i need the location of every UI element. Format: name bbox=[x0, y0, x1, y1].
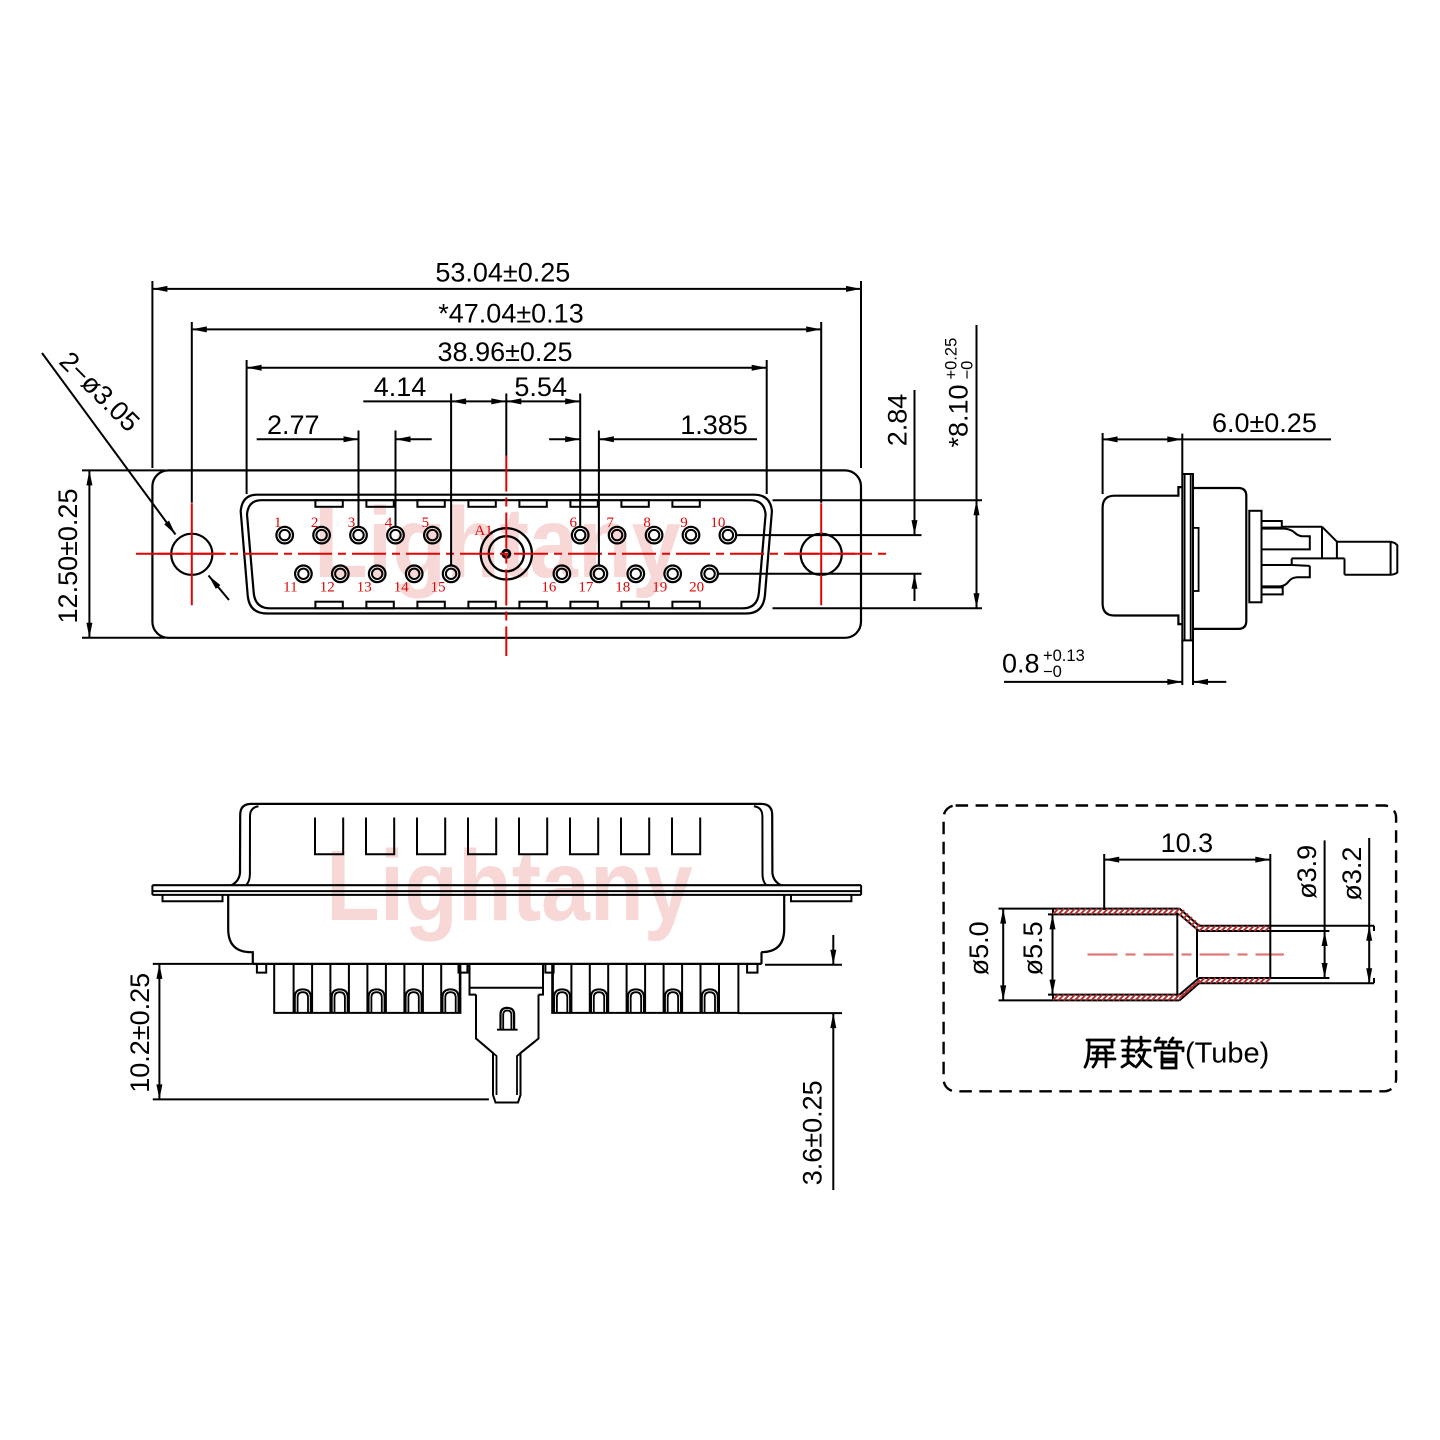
svg-text:9: 9 bbox=[680, 515, 688, 531]
svg-text:10.3: 10.3 bbox=[1161, 828, 1214, 858]
svg-text:3: 3 bbox=[348, 515, 356, 531]
svg-text:(Tube): (Tube) bbox=[1185, 1038, 1269, 1070]
svg-text:−0: −0 bbox=[1043, 663, 1062, 681]
svg-text:2.84: 2.84 bbox=[883, 394, 913, 447]
svg-text:4: 4 bbox=[385, 515, 393, 531]
svg-text:2: 2 bbox=[311, 515, 319, 531]
svg-text:12: 12 bbox=[320, 580, 335, 596]
svg-text:0.8: 0.8 bbox=[1002, 649, 1040, 679]
svg-text:8: 8 bbox=[643, 515, 651, 531]
svg-text:3.6±0.25: 3.6±0.25 bbox=[798, 1080, 828, 1185]
svg-text:5: 5 bbox=[422, 515, 430, 531]
svg-text:38.96±0.25: 38.96±0.25 bbox=[438, 337, 573, 367]
svg-text:20: 20 bbox=[689, 580, 704, 596]
svg-text:2.77: 2.77 bbox=[267, 410, 320, 440]
svg-text:1: 1 bbox=[274, 515, 282, 531]
svg-text:4.14: 4.14 bbox=[374, 372, 427, 402]
svg-text:10.2±0.25: 10.2±0.25 bbox=[125, 973, 155, 1093]
svg-text:1.385: 1.385 bbox=[680, 410, 748, 440]
svg-text:6: 6 bbox=[569, 515, 577, 531]
svg-text:16: 16 bbox=[541, 580, 557, 596]
svg-text:15: 15 bbox=[431, 580, 446, 596]
svg-text:7: 7 bbox=[606, 515, 614, 531]
svg-text:ø3.9: ø3.9 bbox=[1292, 845, 1322, 899]
svg-text:53.04±0.25: 53.04±0.25 bbox=[435, 258, 570, 288]
svg-text:12.50±0.25: 12.50±0.25 bbox=[53, 489, 83, 624]
svg-text:18: 18 bbox=[615, 580, 630, 596]
svg-text:−0: −0 bbox=[959, 361, 977, 380]
svg-text:ø3.2: ø3.2 bbox=[1337, 847, 1367, 901]
svg-text:19: 19 bbox=[652, 580, 667, 596]
svg-text:6.0±0.25: 6.0±0.25 bbox=[1212, 408, 1317, 438]
svg-text:13: 13 bbox=[357, 580, 372, 596]
svg-text:17: 17 bbox=[578, 580, 594, 596]
svg-text:14: 14 bbox=[394, 580, 410, 596]
svg-text:*8.10: *8.10 bbox=[944, 384, 974, 447]
svg-text:ø5.5: ø5.5 bbox=[1018, 921, 1048, 975]
svg-text:5.54: 5.54 bbox=[514, 372, 567, 402]
svg-text:*47.04±0.13: *47.04±0.13 bbox=[438, 298, 583, 328]
svg-text:10: 10 bbox=[710, 515, 725, 531]
svg-text:ø5.0: ø5.0 bbox=[964, 921, 994, 975]
svg-text:A1: A1 bbox=[474, 523, 492, 539]
svg-text:11: 11 bbox=[283, 580, 297, 596]
